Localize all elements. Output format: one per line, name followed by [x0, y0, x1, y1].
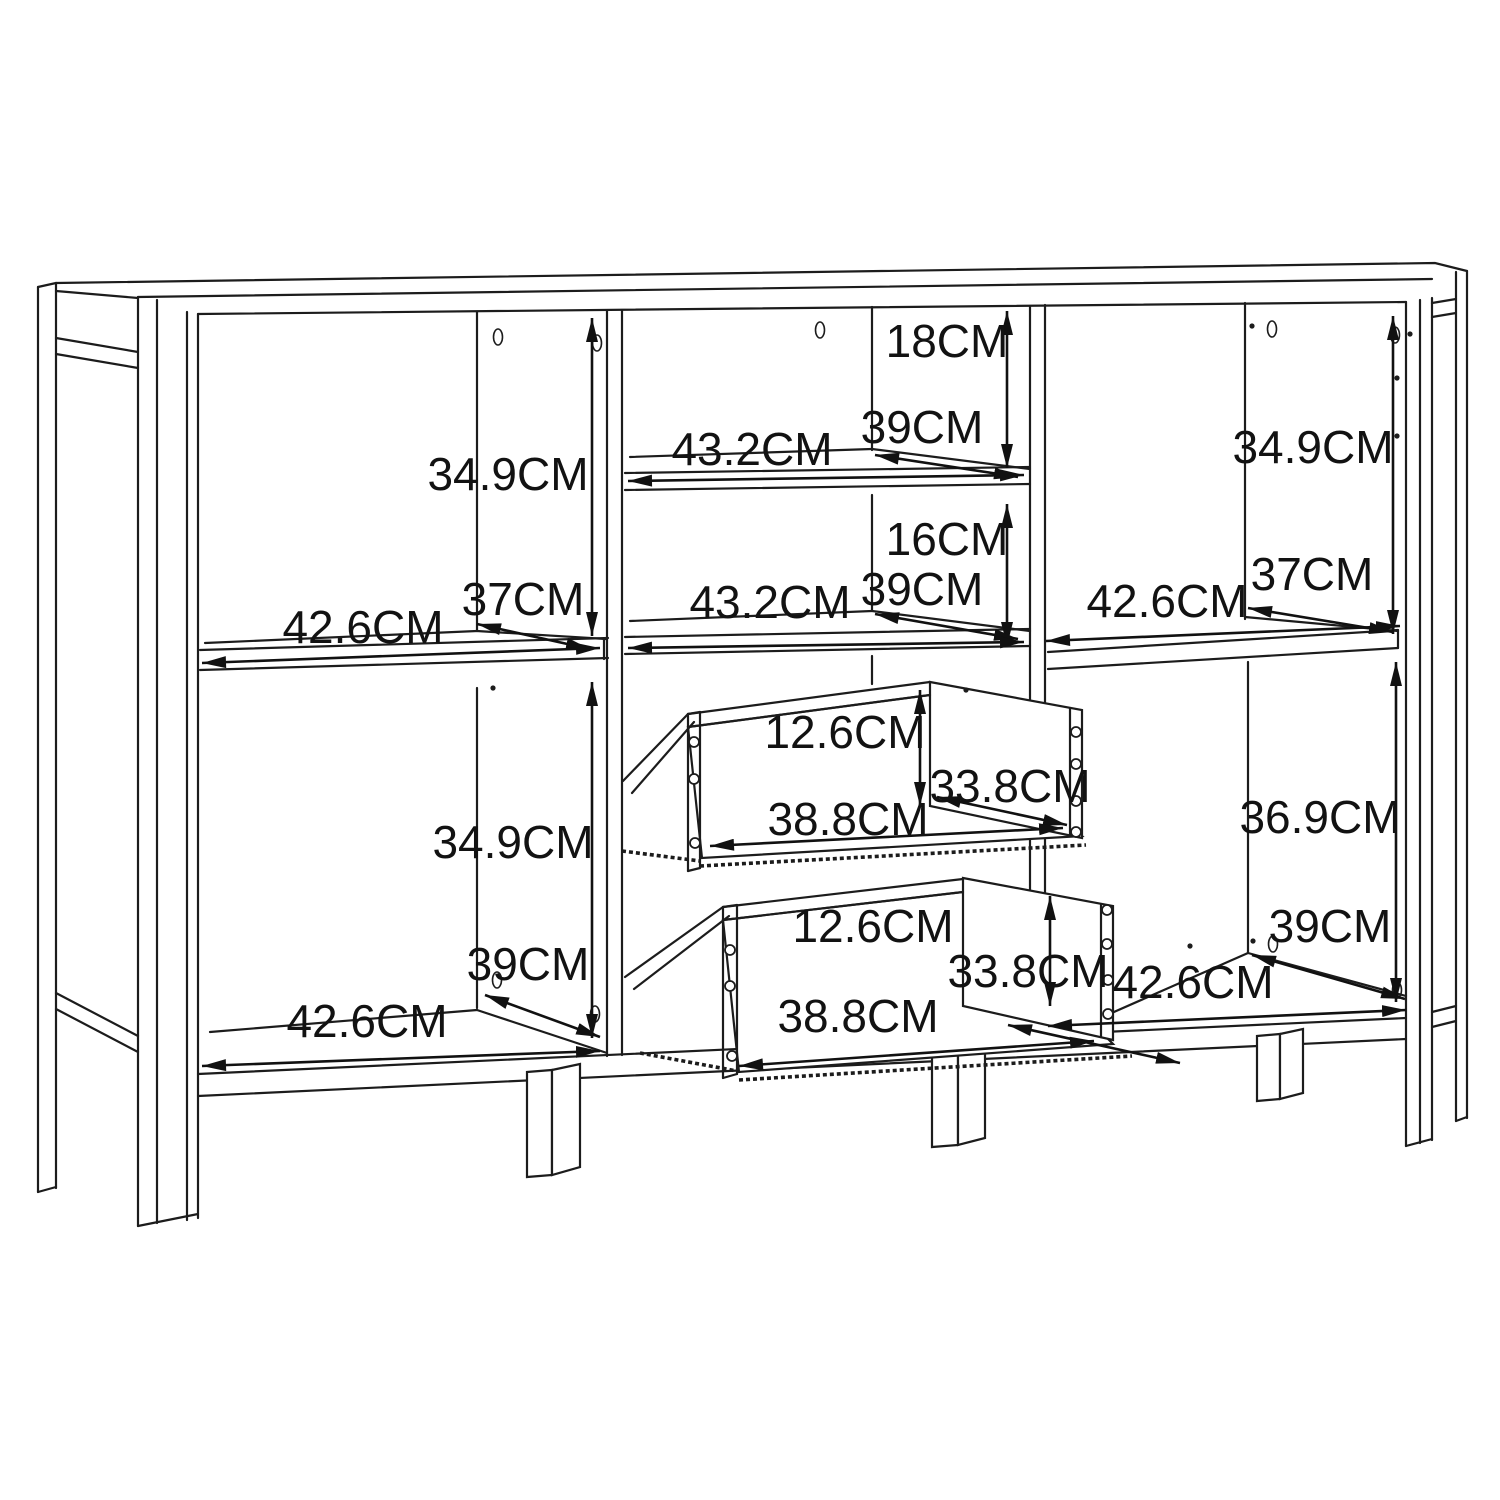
- leg-middle-center: [932, 1046, 985, 1147]
- dim-label-middle-second-width: 43.2CM: [689, 576, 850, 628]
- diagram-page: 34.9CM 37CM 42.6CM 34.9CM 39CM 42.6CM 18…: [0, 0, 1500, 1500]
- dim-label-drawer1-height: 12.6CM: [764, 706, 925, 758]
- dim-label-drawer2-height: 12.6CM: [792, 900, 953, 952]
- dim-label-left-bottom-height: 34.9CM: [432, 816, 593, 868]
- cabinet-dimension-diagram: 34.9CM 37CM 42.6CM 34.9CM 39CM 42.6CM 18…: [0, 0, 1500, 1500]
- leg-middle-right: [1257, 1029, 1303, 1101]
- dim-label-right-bottom-depth: 39CM: [1269, 900, 1392, 952]
- leg-middle-left: [527, 1064, 580, 1177]
- dim-label-middle-top-height: 18CM: [886, 315, 1009, 367]
- dim-label-left-top-height: 34.9CM: [427, 448, 588, 500]
- dim-label-middle-second-height: 16CM: [886, 513, 1009, 565]
- dim-arrow-right-bottom-depth: [1252, 955, 1405, 999]
- left-side-frame: [38, 283, 198, 1226]
- dim-label-right-bottom-height: 36.9CM: [1239, 791, 1400, 843]
- dimension-labels: 34.9CM 37CM 42.6CM 34.9CM 39CM 42.6CM 18…: [282, 315, 1400, 1047]
- dim-label-right-top-height: 34.9CM: [1232, 421, 1393, 473]
- right-side-frame: [1406, 271, 1467, 1146]
- dim-label-middle-second-depth: 39CM: [861, 563, 984, 615]
- dim-label-middle-top-width: 43.2CM: [671, 423, 832, 475]
- dim-label-left-bottom-depth: 39CM: [467, 938, 590, 990]
- dim-label-right-bottom-width: 42.6CM: [1112, 956, 1273, 1008]
- divider-left: [607, 310, 622, 1056]
- dim-label-drawer2-width: 38.8CM: [777, 990, 938, 1042]
- dim-label-drawer2-depth: 33.8CM: [947, 945, 1108, 997]
- dim-label-drawer1-depth: 33.8CM: [929, 760, 1090, 812]
- dim-label-left-top-width: 42.6CM: [282, 601, 443, 653]
- dim-label-left-bottom-width: 42.6CM: [286, 995, 447, 1047]
- dim-arrow-middle-top-width: [628, 475, 1024, 481]
- dim-label-drawer1-width: 38.8CM: [767, 793, 928, 845]
- dim-label-right-top-width: 42.6CM: [1086, 575, 1247, 627]
- dim-label-middle-top-depth: 39CM: [861, 401, 984, 453]
- dim-label-left-top-depth: 37CM: [462, 573, 585, 625]
- top-panel: [56, 263, 1467, 314]
- dim-label-right-top-depth: 37CM: [1251, 548, 1374, 600]
